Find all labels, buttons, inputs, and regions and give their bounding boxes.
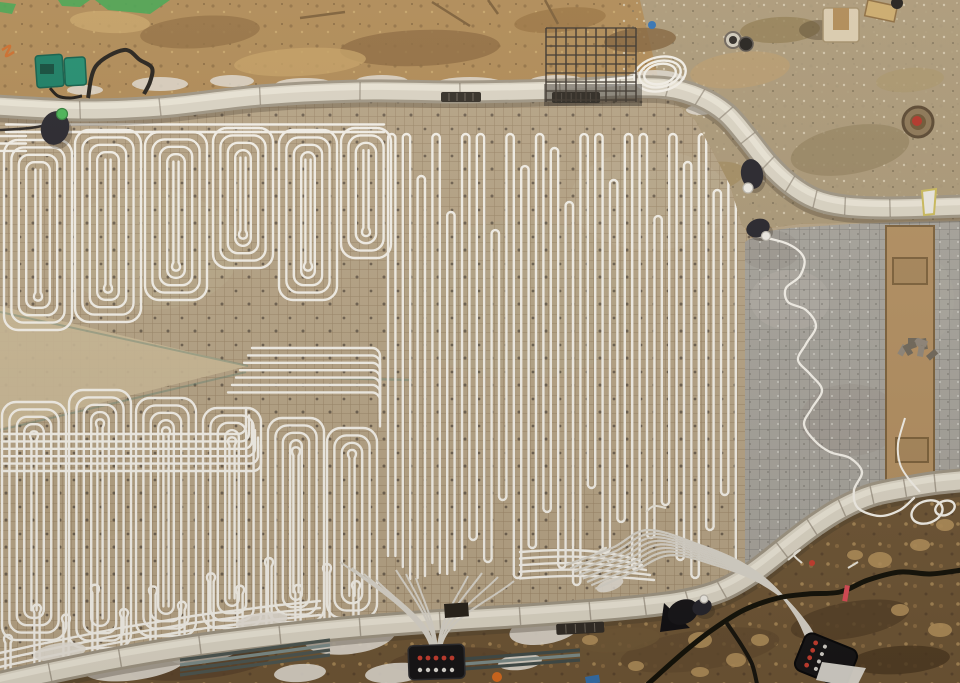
- marker-cone: [922, 189, 936, 215]
- blue-marker: [648, 21, 656, 29]
- helmet-white: [743, 183, 753, 193]
- helmet-white: [700, 595, 708, 603]
- manhole-dark: [739, 37, 753, 51]
- helmet-green: [57, 109, 68, 120]
- manifold-box-1: [408, 644, 465, 680]
- worker-orange-vest: [492, 672, 502, 682]
- helmet-white: [762, 232, 771, 241]
- aerial-construction-photo: [0, 0, 960, 683]
- scene-svg: [0, 0, 960, 683]
